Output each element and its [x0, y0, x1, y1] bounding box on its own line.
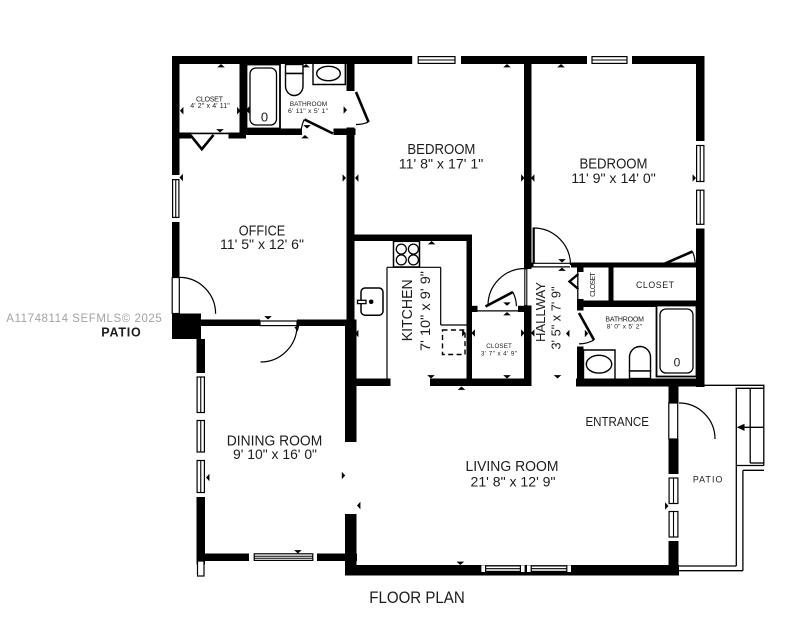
- svg-text:0: 0: [674, 356, 681, 370]
- svg-text:3' 7" x 4' 9": 3' 7" x 4' 9": [481, 351, 517, 358]
- svg-text:CLOSET: CLOSET: [590, 272, 597, 297]
- svg-text:3' 5" x 7' 9": 3' 5" x 7' 9": [550, 287, 564, 350]
- svg-text:11' 5" x 12' 6": 11' 5" x 12' 6": [220, 237, 304, 252]
- svg-text:FLOOR PLAN: FLOOR PLAN: [369, 589, 465, 607]
- svg-text:6' 11" x 5' 1": 6' 11" x 5' 1": [288, 108, 329, 115]
- svg-text:11' 8" x 17' 1": 11' 8" x 17' 1": [399, 157, 484, 172]
- svg-text:CLOSET: CLOSET: [196, 94, 224, 103]
- svg-text:4' 2" x 4' 11": 4' 2" x 4' 11": [190, 103, 230, 110]
- svg-text:8' 0" x 5' 2": 8' 0" x 5' 2": [607, 324, 643, 331]
- svg-text:CLOSET: CLOSET: [486, 343, 512, 350]
- svg-text:KITCHEN: KITCHEN: [400, 279, 416, 341]
- svg-text:9' 10" x 16' 0": 9' 10" x 16' 0": [233, 447, 317, 462]
- svg-text:HALLWAY: HALLWAY: [533, 282, 548, 342]
- svg-text:LIVING ROOM: LIVING ROOM: [466, 459, 559, 475]
- svg-text:BATHROOM: BATHROOM: [605, 317, 644, 324]
- svg-text:PATIO: PATIO: [693, 475, 723, 485]
- svg-text:7' 10" x 9' 9": 7' 10" x 9' 9": [418, 271, 433, 351]
- svg-text:A11748114 SEFMLS© 2025: A11748114 SEFMLS© 2025: [6, 313, 162, 325]
- svg-text:CLOSET: CLOSET: [636, 280, 675, 290]
- svg-text:0: 0: [261, 110, 268, 125]
- svg-text:PATIO: PATIO: [101, 325, 141, 339]
- svg-text:21' 8" x 12' 9": 21' 8" x 12' 9": [471, 475, 556, 490]
- svg-text:11' 9" x 14' 0": 11' 9" x 14' 0": [571, 171, 656, 186]
- svg-text:ENTRANCE: ENTRANCE: [585, 414, 649, 429]
